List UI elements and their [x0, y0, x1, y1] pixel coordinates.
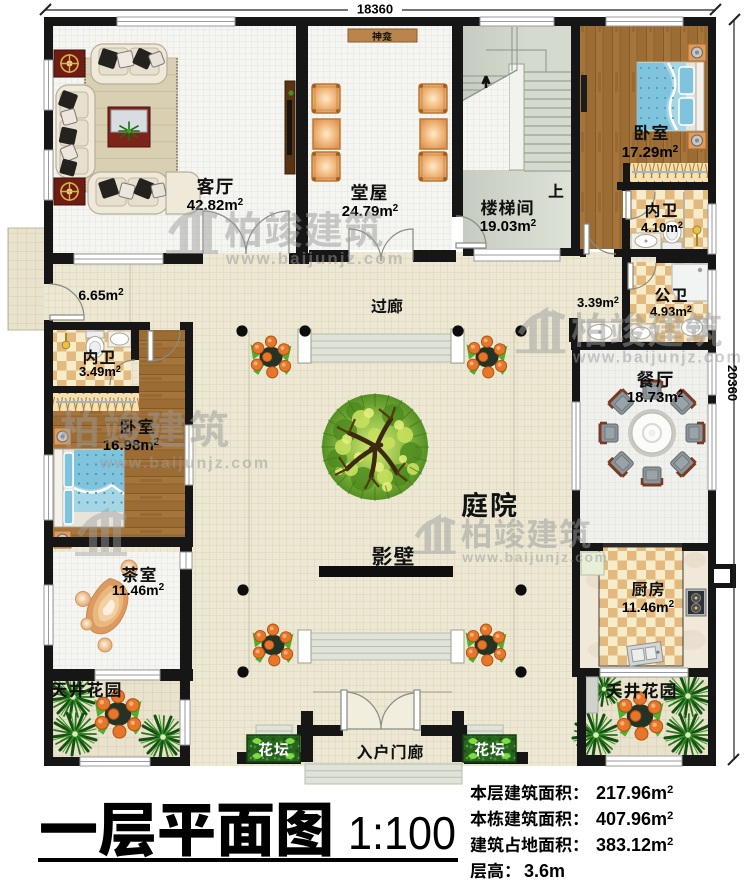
- svg-text:4.10m2: 4.10m2: [641, 220, 683, 235]
- svg-text:3.49m2: 3.49m2: [79, 364, 121, 379]
- svg-text:217.96m2: 217.96m2: [596, 783, 673, 803]
- svg-text:3.6m: 3.6m: [524, 861, 565, 881]
- svg-text:19.03m2: 19.03m2: [480, 218, 537, 235]
- svg-text:www.baijunjz.com: www.baijunjz.com: [461, 549, 609, 565]
- svg-text:383.12m2: 383.12m2: [596, 835, 673, 855]
- svg-text:3.39m2: 3.39m2: [577, 295, 619, 310]
- svg-text:11.46m2: 11.46m2: [622, 599, 675, 615]
- svg-text:11.46m2: 11.46m2: [112, 582, 165, 598]
- svg-text:1:100: 1:100: [348, 807, 456, 859]
- svg-text:6.65m2: 6.65m2: [78, 287, 124, 303]
- svg-text:www.baijunjz.com: www.baijunjz.com: [572, 349, 743, 367]
- svg-text:www.baijunjz.com: www.baijunjz.com: [99, 455, 270, 472]
- svg-text:18360: 18360: [357, 2, 393, 17]
- svg-text:407.96m2: 407.96m2: [596, 809, 673, 829]
- svg-text:www.baijunjz.com: www.baijunjz.com: [225, 249, 405, 268]
- svg-text:20360: 20360: [725, 365, 740, 401]
- svg-text:17.29m2: 17.29m2: [622, 144, 679, 161]
- svg-text:18.73m2: 18.73m2: [627, 389, 684, 406]
